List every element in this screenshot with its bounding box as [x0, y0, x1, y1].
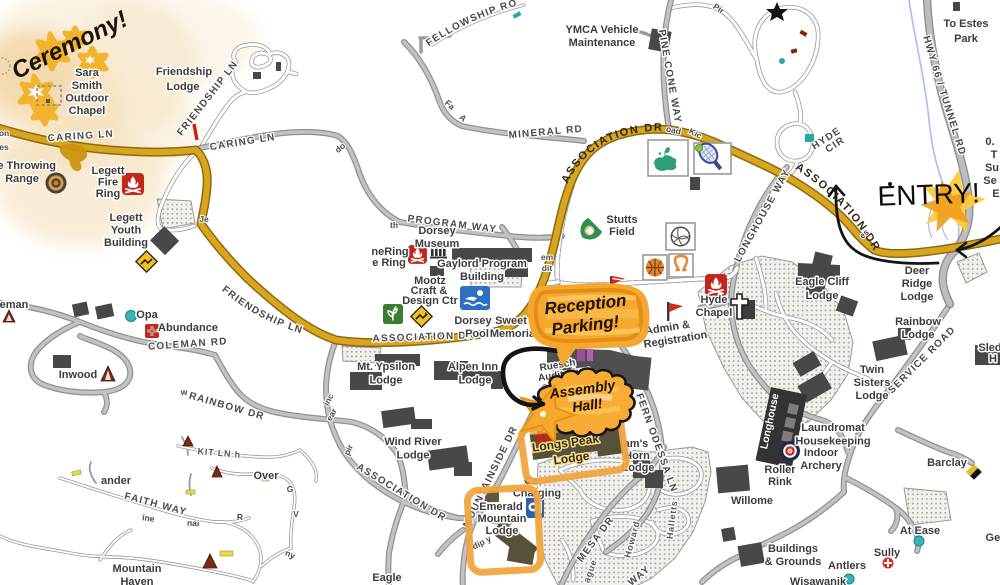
svg-text:th: th — [390, 220, 398, 230]
svg-text:Wisawanik: Wisawanik — [790, 576, 847, 585]
svg-text:At Ease: At Ease — [900, 525, 940, 537]
svg-text:ine: ine — [142, 512, 156, 524]
svg-text:DeerRidgeLodge: DeerRidgeLodge — [901, 265, 934, 303]
svg-text:G: G — [287, 484, 294, 494]
svg-text:w: w — [180, 387, 188, 397]
svg-text:ander: ander — [101, 475, 132, 487]
svg-text:Sully: Sully — [874, 547, 901, 559]
svg-text:Over: Over — [253, 470, 279, 482]
svg-text:nai: nai — [187, 518, 200, 529]
svg-text:Abundance: Abundance — [158, 322, 218, 334]
svg-text:DorseyMuseum: DorseyMuseum — [415, 225, 460, 250]
svg-text:em: em — [541, 252, 554, 262]
svg-text:es: es — [0, 142, 9, 152]
svg-text:dit: dit — [542, 263, 553, 273]
svg-text:e Ring: e Ring — [372, 257, 406, 269]
svg-text:R: R — [237, 512, 243, 522]
svg-text:RollerRink: RollerRink — [764, 464, 796, 488]
svg-text:YMCA VehicleMaintenance: YMCA VehicleMaintenance — [566, 24, 639, 49]
svg-text:IndoorArchery: IndoorArchery — [800, 447, 842, 472]
svg-text:LaundromatHousekeeping: LaundromatHousekeeping — [795, 422, 870, 448]
svg-text:Inwood: Inwood — [59, 369, 98, 381]
svg-text:Opa: Opa — [136, 309, 158, 321]
svg-text:Buildings& Grounds: Buildings& Grounds — [765, 543, 822, 568]
svg-text:Barclay: Barclay — [927, 457, 968, 469]
svg-text:Je: Je — [199, 214, 209, 224]
svg-text:Ger: Ger — [986, 532, 1000, 544]
svg-text:ENTRY!: ENTRY! — [877, 177, 980, 212]
svg-text:Range: Range — [5, 173, 39, 185]
svg-text:HydeChapel: HydeChapel — [696, 294, 733, 319]
svg-text:RainbowLodge: RainbowLodge — [895, 316, 941, 341]
svg-text:Eagle: Eagle — [372, 572, 401, 584]
svg-text:Willome: Willome — [731, 495, 773, 507]
svg-text:e Throwing: e Throwing — [0, 160, 56, 172]
svg-text:Antlers: Antlers — [828, 560, 866, 572]
svg-text:V: V — [293, 509, 299, 519]
svg-text:on: on — [0, 128, 9, 138]
svg-text:StuttsField: StuttsField — [606, 214, 637, 238]
svg-text:eman: eman — [0, 299, 29, 311]
